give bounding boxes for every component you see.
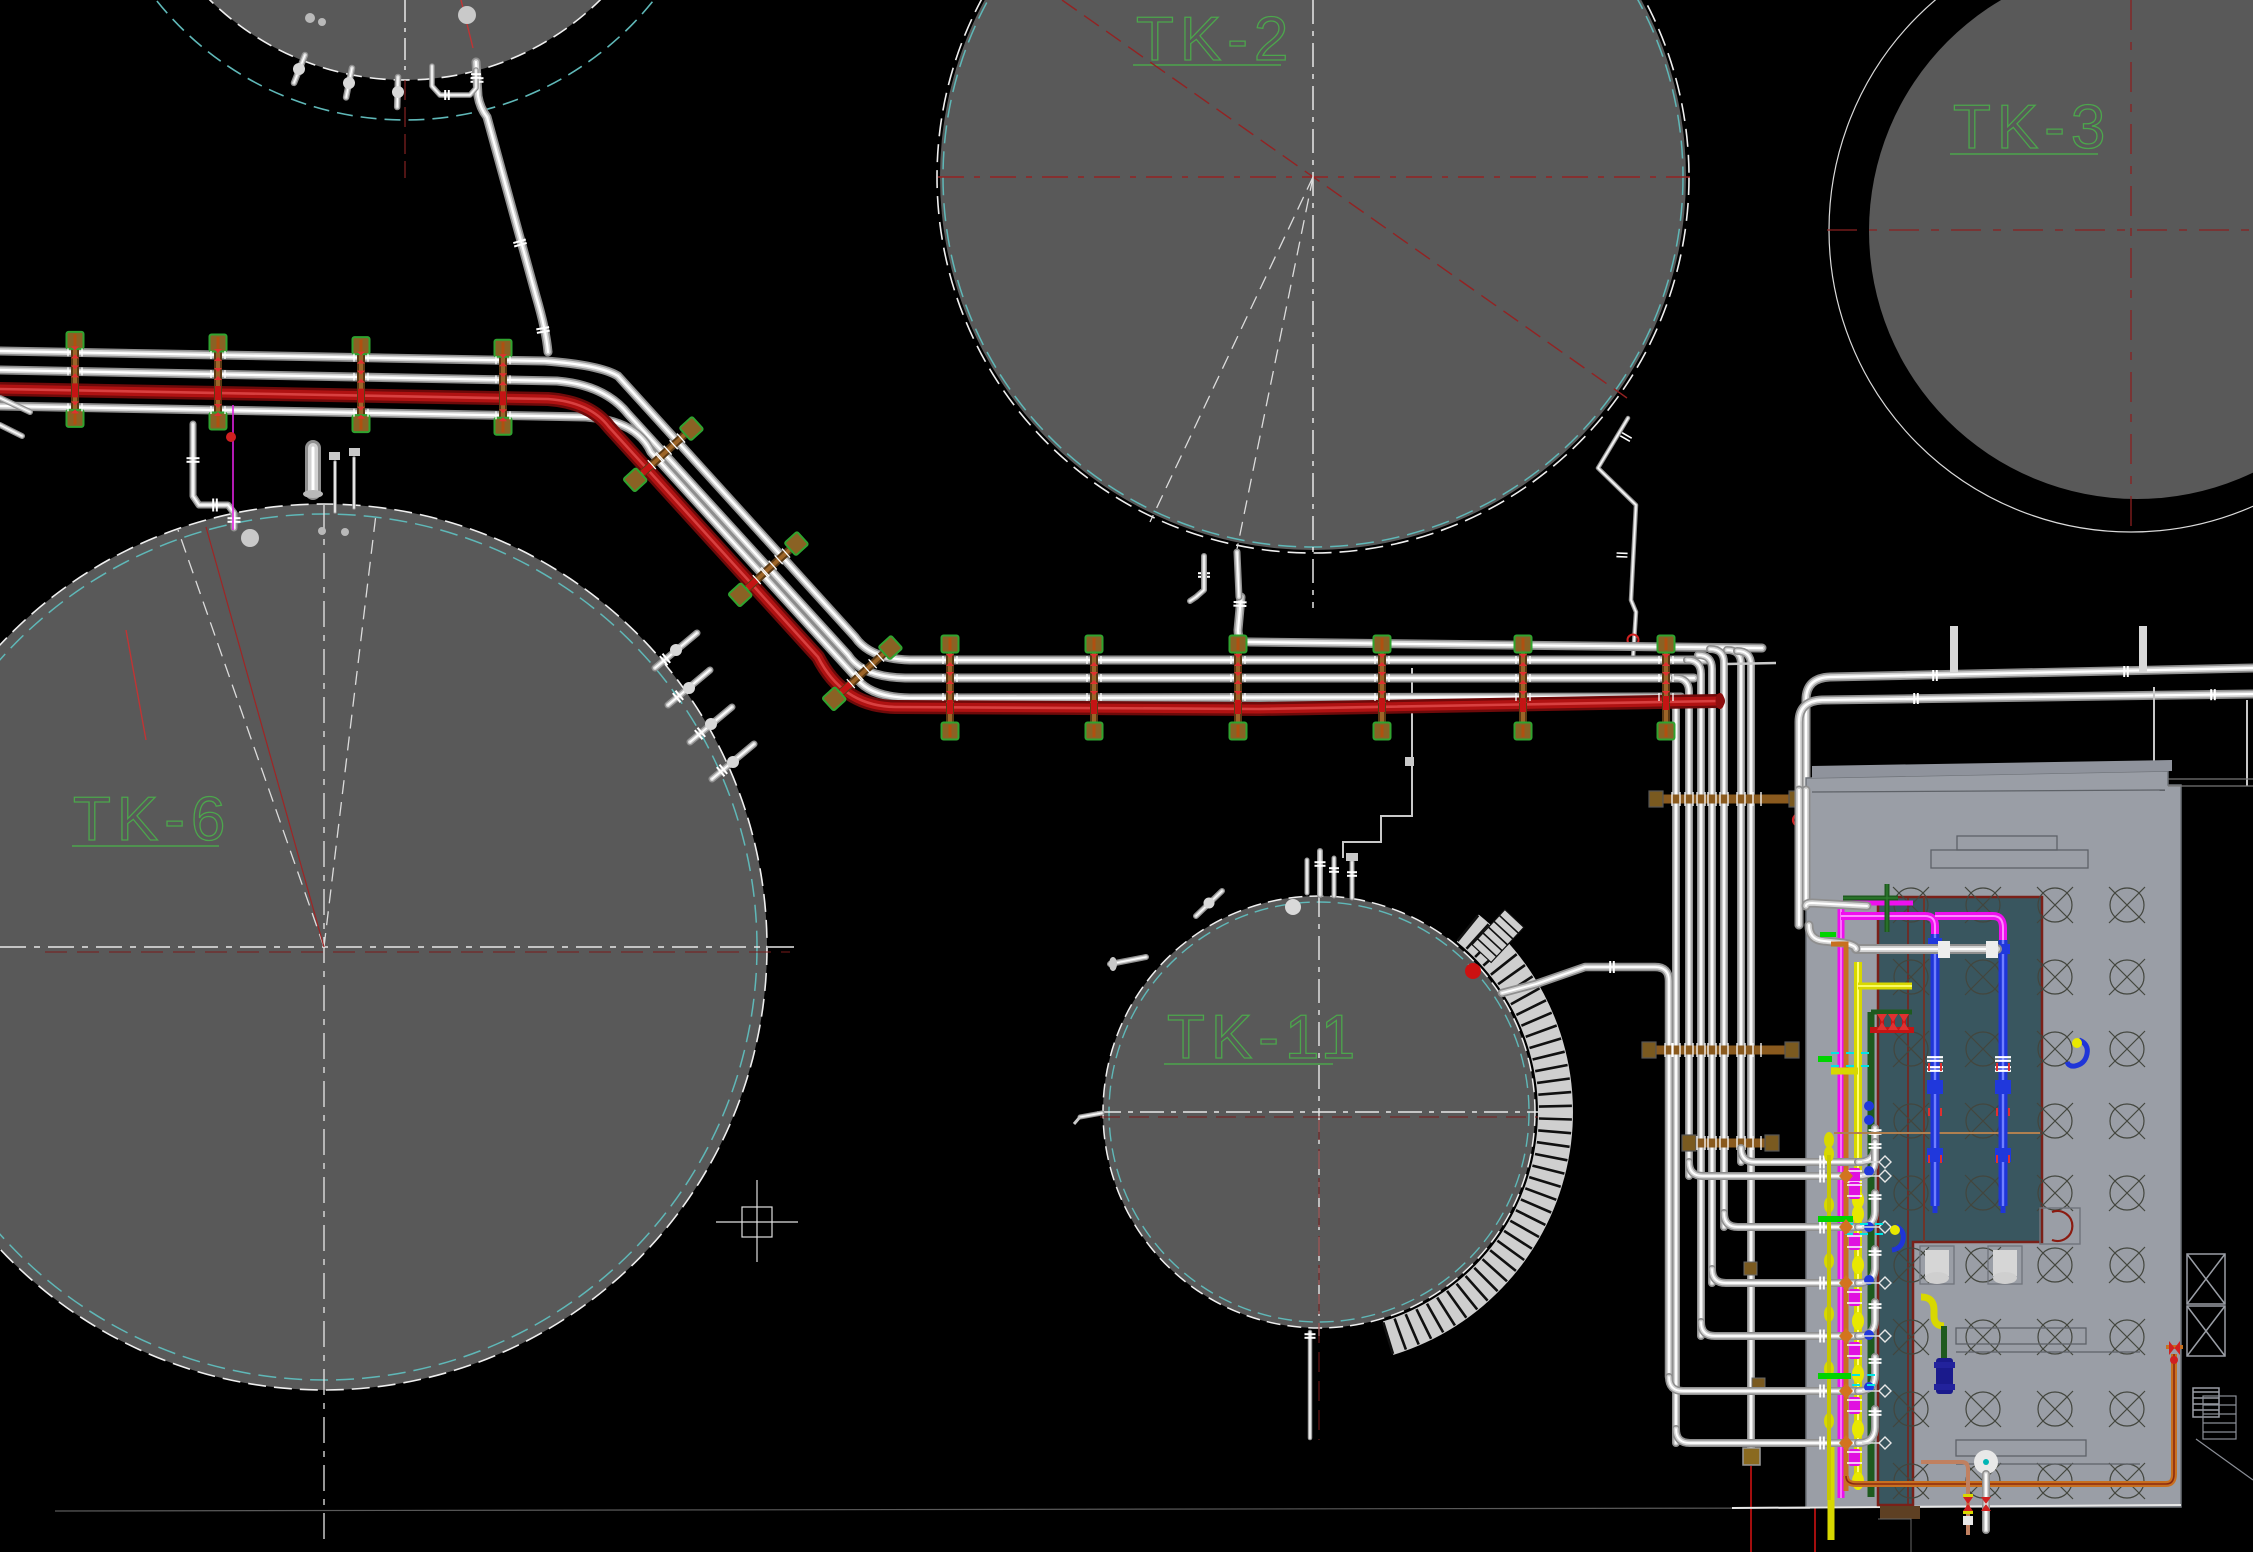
svg-text:TK-6: TK-6 <box>73 785 231 854</box>
svg-text:TK-3: TK-3 <box>1953 93 2111 162</box>
svg-text:TK-2: TK-2 <box>1136 5 1294 74</box>
svg-text:TK-11: TK-11 <box>1167 1003 1361 1072</box>
